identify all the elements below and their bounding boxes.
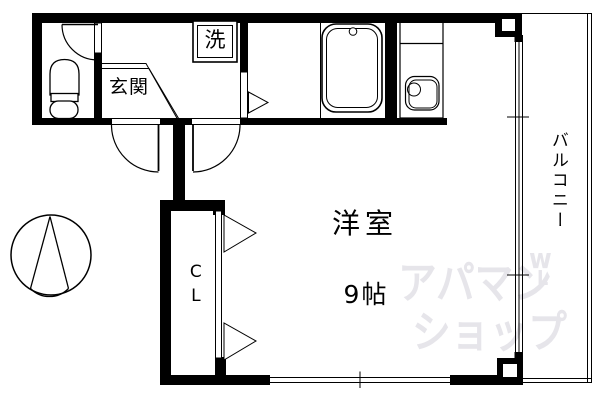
sink-inner (409, 80, 437, 108)
window-cap-top (515, 35, 524, 42)
bathroom-door-opening (241, 72, 248, 118)
compass-icon (11, 215, 91, 297)
toilet-tank (51, 94, 78, 102)
south-window (270, 372, 450, 389)
wall-toilet-east (94, 53, 102, 118)
balcony-window (507, 42, 529, 352)
wall-left (32, 13, 42, 125)
entry-door-opening (112, 119, 161, 125)
compass-circle (11, 215, 91, 295)
entrance-label: 玄関 (109, 78, 149, 98)
closet-fold-marker-upper (224, 215, 256, 252)
compass-needle-right (50, 217, 69, 289)
toilet-bowl (50, 60, 79, 96)
wall-strip-bottom-c (240, 118, 447, 125)
wall-washroom-bath (240, 22, 248, 72)
bathroom-folding-door-marker (249, 92, 269, 113)
bathtub-inner (327, 29, 378, 108)
floorplan-drawing (0, 0, 600, 400)
washroom-door-opening (192, 119, 241, 125)
wall-entry-stub (173, 125, 185, 201)
pillar-top-right-core (502, 19, 515, 31)
closet-label: CL (186, 262, 204, 322)
western-room-label: 洋室 (328, 209, 402, 238)
wall-strip-bottom-b (160, 118, 192, 125)
wall-bottom-b (450, 375, 497, 385)
balcony-label: バルコニー (548, 131, 566, 243)
bathtub-drain (349, 28, 357, 36)
closet-door-track (216, 211, 222, 358)
floor-plan: アパマン ショップ w L (0, 0, 600, 400)
toilet-icon (50, 60, 79, 119)
wall-closet-left (160, 200, 171, 385)
kitchen-sink-icon (400, 21, 443, 118)
entry-door-arc (112, 125, 159, 172)
toilet-base (50, 101, 78, 119)
room-size-label: 9帖 (334, 282, 398, 308)
wall-bottom-a (160, 375, 270, 385)
wall-bath-kitchen (385, 22, 397, 118)
washer-label: 洗 (196, 29, 234, 51)
window-cap-bottom (515, 352, 524, 359)
washroom-door-arc (193, 125, 240, 172)
toilet-door-opening (95, 23, 102, 53)
bathtub-icon (322, 24, 382, 112)
toilet-door-arc (62, 25, 98, 61)
closet-fold-marker-lower (224, 323, 256, 360)
pillar-bottom-right-core (503, 364, 517, 377)
wall-strip-bottom-a (32, 118, 112, 125)
compass-needle-left (31, 217, 51, 289)
